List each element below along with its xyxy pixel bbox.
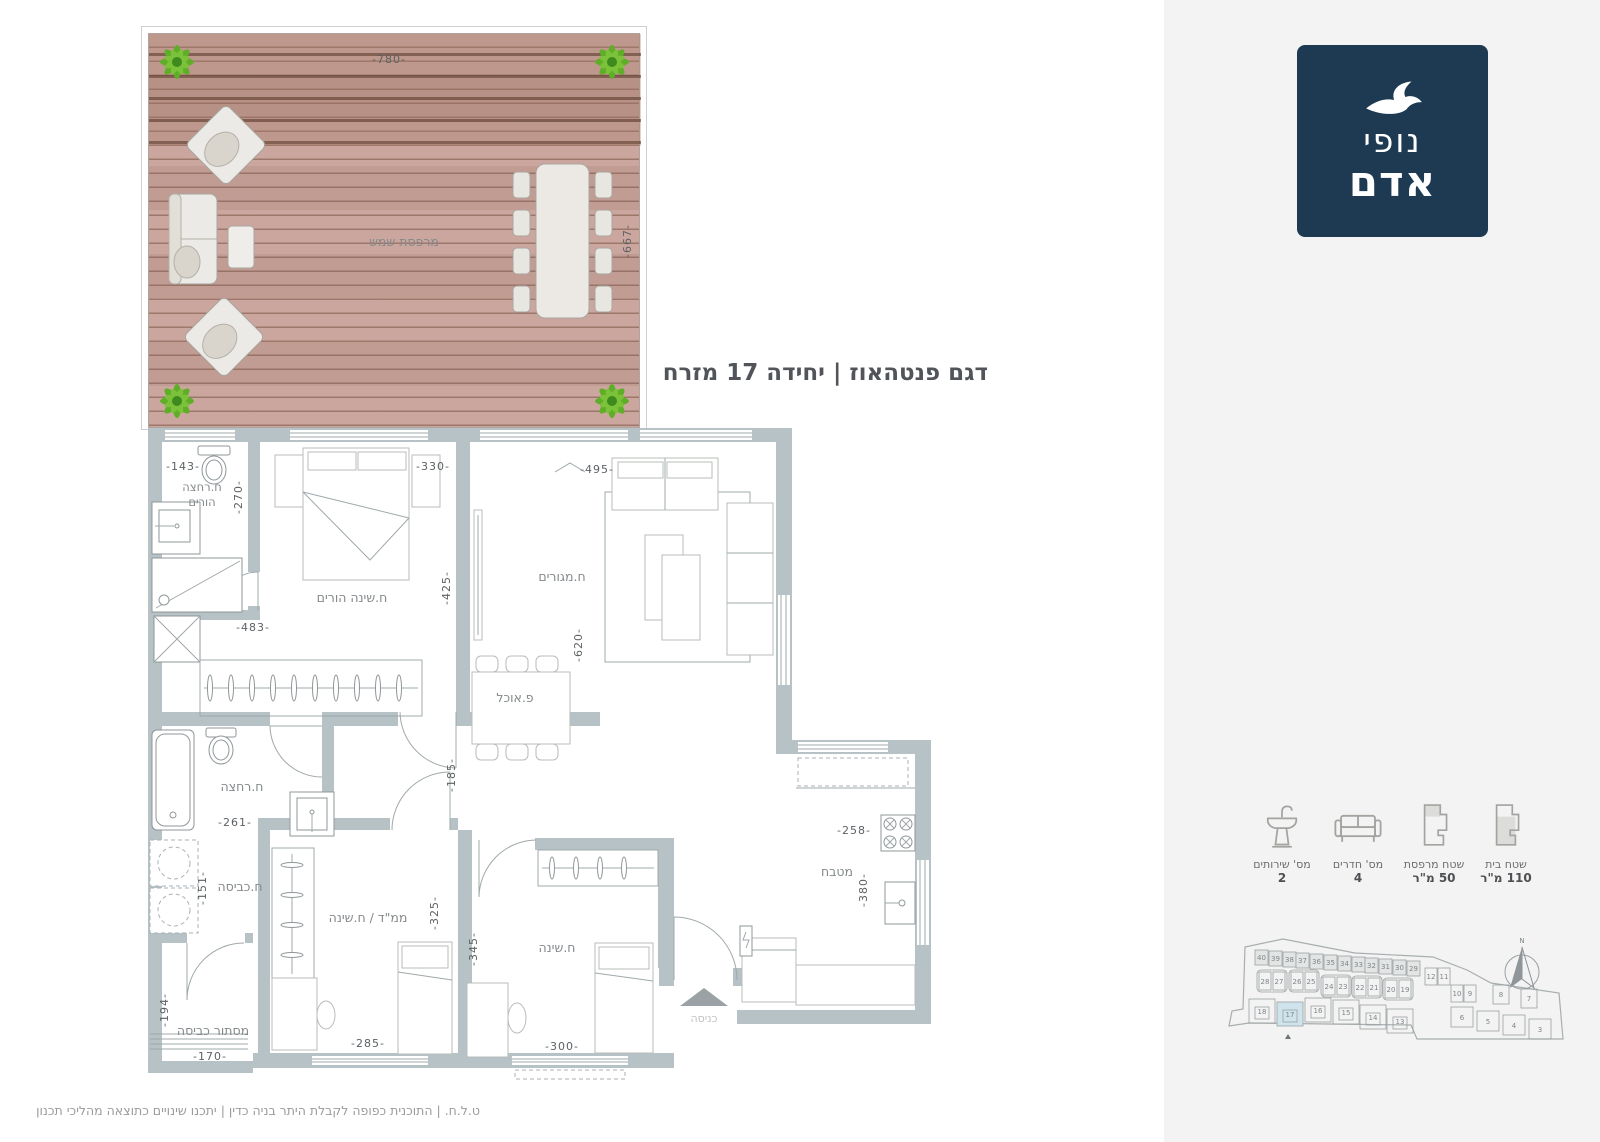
svg-text:29: 29 xyxy=(1409,965,1418,973)
svg-text:34: 34 xyxy=(1340,960,1349,968)
svg-text:N: N xyxy=(1519,937,1524,945)
dim-151: -151- xyxy=(196,871,209,905)
svg-text:33: 33 xyxy=(1354,961,1363,969)
legend-label: שטח מרפסת xyxy=(1394,858,1474,871)
entrance-arrow-icon xyxy=(680,988,728,1006)
svg-text:31: 31 xyxy=(1381,963,1390,971)
svg-text:25: 25 xyxy=(1307,978,1316,986)
room-label-mamad: ממ"ד / ח.שינה xyxy=(329,910,408,925)
svg-text:4: 4 xyxy=(1512,1022,1517,1030)
legend-value: 4 xyxy=(1318,871,1398,885)
svg-text:16: 16 xyxy=(1314,1007,1323,1015)
brand-logo: נופי אדם xyxy=(1297,45,1488,237)
balcony-area-icon xyxy=(1411,800,1457,852)
svg-text:13: 13 xyxy=(1396,1018,1405,1026)
dim-330: -330- xyxy=(416,460,450,473)
dim-380: -380- xyxy=(857,873,870,907)
side-table xyxy=(228,226,254,268)
logo-line1: נופי xyxy=(1363,121,1421,160)
legend-value: 110 מ"ר xyxy=(1466,871,1546,885)
room-label-master-bedroom: ח.שינה הורים xyxy=(317,590,388,605)
svg-text:39: 39 xyxy=(1271,955,1280,963)
room-label-laundry-screen: מסתור כביסה xyxy=(177,1023,249,1038)
plant-icon xyxy=(160,45,194,79)
svg-text:14: 14 xyxy=(1369,1014,1378,1022)
house-area-icon xyxy=(1483,800,1529,852)
shower xyxy=(152,558,242,612)
dim-270: -270- xyxy=(232,480,245,514)
logo-line2: אדם xyxy=(1349,160,1437,204)
north-arrow-icon: N xyxy=(1505,937,1539,989)
sun-terrace: -780- -667- מרפסת שמש xyxy=(142,27,646,429)
legend-label: מס' שירותים xyxy=(1242,858,1322,871)
site-plan: N 403938373635343332313029 2827 2625 242… xyxy=(1205,915,1585,1065)
dim-285: -285- xyxy=(351,1037,385,1050)
sink-fixture xyxy=(152,502,200,554)
bird-icon xyxy=(1360,77,1426,119)
svg-text:35: 35 xyxy=(1326,959,1335,967)
svg-text:37: 37 xyxy=(1298,957,1307,965)
outdoor-dining-set xyxy=(513,164,612,318)
svg-text:17: 17 xyxy=(1286,1011,1295,1019)
sink-fixture xyxy=(290,792,334,836)
svg-text:5: 5 xyxy=(1486,1018,1490,1026)
deck-dim-top: -780- xyxy=(372,53,406,66)
dim-185: -185- xyxy=(445,758,458,792)
svg-text:38: 38 xyxy=(1285,956,1294,964)
lounge-chair xyxy=(185,104,267,186)
footer-disclaimer: ט.ל.ח. | התוכנית כפופה לקבלת היתר בניה כ… xyxy=(118,1103,480,1118)
svg-text:21: 21 xyxy=(1370,984,1379,992)
svg-text:40: 40 xyxy=(1257,954,1266,962)
deck-furniture: -780- -667- מרפסת שמש xyxy=(149,34,641,429)
dim-325: -325- xyxy=(428,896,441,930)
svg-text:8: 8 xyxy=(1499,991,1503,999)
dim-143: -143- xyxy=(166,460,200,473)
dim-620: -620- xyxy=(572,628,585,662)
svg-text:27: 27 xyxy=(1275,978,1284,986)
washer-dryer xyxy=(150,840,198,933)
plant-icon xyxy=(160,384,194,418)
svg-text:11: 11 xyxy=(1440,973,1449,981)
svg-text:32: 32 xyxy=(1367,962,1376,970)
sink-icon xyxy=(1258,800,1306,852)
sofa-icon xyxy=(1330,800,1386,852)
deck-dim-right: -667- xyxy=(621,224,634,258)
dim-483: -483- xyxy=(236,621,270,634)
room-label-entrance: כניסה xyxy=(690,1012,717,1025)
svg-text:9: 9 xyxy=(1468,990,1472,998)
plan-title: דגם פנטהאוז | יחידה 17 מזרח xyxy=(663,360,988,386)
toilet-icon xyxy=(206,728,236,764)
legend-item-house-area: שטח בית 110 מ"ר xyxy=(1466,800,1546,885)
dining-set xyxy=(472,656,570,760)
svg-text:6: 6 xyxy=(1460,1014,1465,1022)
svg-text:15: 15 xyxy=(1342,1009,1351,1017)
legend-value: 2 xyxy=(1242,871,1322,885)
room-label-dining: פ.אוכל xyxy=(496,690,533,705)
dim-495: -495- xyxy=(580,463,614,476)
toilet-icon xyxy=(198,446,230,484)
svg-text:7: 7 xyxy=(1527,995,1531,1003)
svg-text:22: 22 xyxy=(1356,984,1365,992)
dim-258: -258- xyxy=(837,824,871,837)
bathtub xyxy=(152,730,194,830)
room-label-kitchen: מטבח xyxy=(821,864,853,879)
room-label-master-bath-2: הורים xyxy=(188,495,215,509)
kitchen-fixtures xyxy=(740,758,915,1005)
svg-text:18: 18 xyxy=(1258,1008,1267,1016)
legend-label: מס' חדרים xyxy=(1318,858,1398,871)
room-label-living: ח.מגורים xyxy=(538,569,585,584)
dim-170: -170- xyxy=(193,1050,227,1063)
room-label-bath2: ח.רחצה xyxy=(221,779,264,794)
room-label-master-bath-1: ח.רחצה xyxy=(182,480,222,494)
plant-icon xyxy=(595,384,629,418)
svg-text:19: 19 xyxy=(1401,986,1410,994)
svg-text:10: 10 xyxy=(1453,990,1462,998)
shaft xyxy=(154,616,200,662)
dim-300: -300- xyxy=(545,1040,579,1053)
legend-label: שטח בית xyxy=(1466,858,1546,871)
room-label-bedroom: ח.שינה xyxy=(539,940,576,955)
svg-text:30: 30 xyxy=(1395,964,1404,972)
svg-text:26: 26 xyxy=(1293,978,1302,986)
legend-value: 50 מ"ר xyxy=(1394,871,1474,885)
svg-text:36: 36 xyxy=(1312,958,1321,966)
living-furniture xyxy=(474,458,773,662)
legend-item-rooms: מס' חדרים 4 xyxy=(1318,800,1398,885)
room-label-laundry: ח.כביסה xyxy=(217,879,262,894)
legend-item-bathrooms: מס' שירותים 2 xyxy=(1242,800,1322,885)
svg-text:23: 23 xyxy=(1339,983,1348,991)
outdoor-sofa xyxy=(169,194,217,284)
dim-194: -194- xyxy=(158,993,171,1027)
deck-floor: -780- -667- מרפסת שמש xyxy=(148,33,640,428)
floor-plan: ח.רחצה הורים ח.שינה הורים ח.מגורים פ.אוכ… xyxy=(140,420,940,1085)
svg-text:20: 20 xyxy=(1387,986,1396,994)
dim-261: -261- xyxy=(218,816,252,829)
svg-text:28: 28 xyxy=(1261,978,1270,986)
site-marker xyxy=(1285,1034,1291,1039)
svg-text:24: 24 xyxy=(1325,983,1334,991)
plant-icon xyxy=(595,45,629,79)
lounge-chair xyxy=(183,296,265,378)
mamad-furniture xyxy=(272,848,452,1054)
svg-text:12: 12 xyxy=(1427,973,1436,981)
dim-425: -425- xyxy=(440,571,453,605)
svg-text:3: 3 xyxy=(1538,1026,1542,1034)
legend-item-balcony-area: שטח מרפסת 50 מ"ר xyxy=(1394,800,1474,885)
deck-label: מרפסת שמש xyxy=(369,234,439,249)
dim-345: -345- xyxy=(467,932,480,966)
master-closet xyxy=(200,660,422,716)
